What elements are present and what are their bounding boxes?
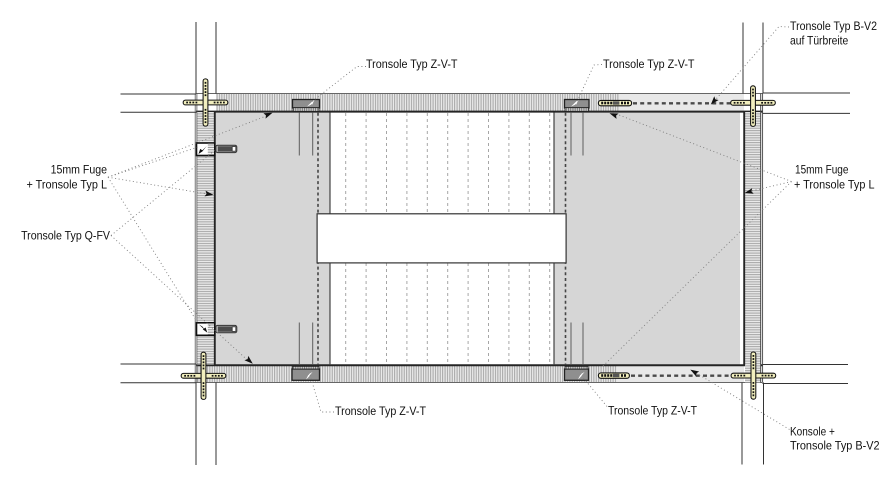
svg-text:Tronsole Typ Z-V-T: Tronsole Typ Z-V-T [603, 57, 695, 71]
svg-text:15mm Fuge: 15mm Fuge [51, 163, 108, 177]
svg-text:Tronsole Typ B-V2: Tronsole Typ B-V2 [790, 438, 880, 452]
svg-text:Tronsole Typ Z-V-T: Tronsole Typ Z-V-T [608, 404, 697, 418]
svg-text:15mm Fuge: 15mm Fuge [795, 163, 849, 177]
svg-text:+ Tronsole Typ L: + Tronsole Typ L [27, 178, 108, 192]
svg-text:Tronsole Typ B-V2: Tronsole Typ B-V2 [790, 19, 877, 33]
svg-text:Tronsole Typ Z-V-T: Tronsole Typ Z-V-T [335, 404, 426, 418]
svg-text:auf Türbreite: auf Türbreite [790, 34, 848, 48]
svg-text:+ Tronsole Typ L: + Tronsole Typ L [794, 178, 875, 192]
svg-text:Konsole +: Konsole + [790, 424, 835, 438]
svg-text:Tronsole Typ Q-FV: Tronsole Typ Q-FV [21, 228, 111, 242]
svg-text:Tronsole Typ Z-V-T: Tronsole Typ Z-V-T [366, 57, 458, 71]
